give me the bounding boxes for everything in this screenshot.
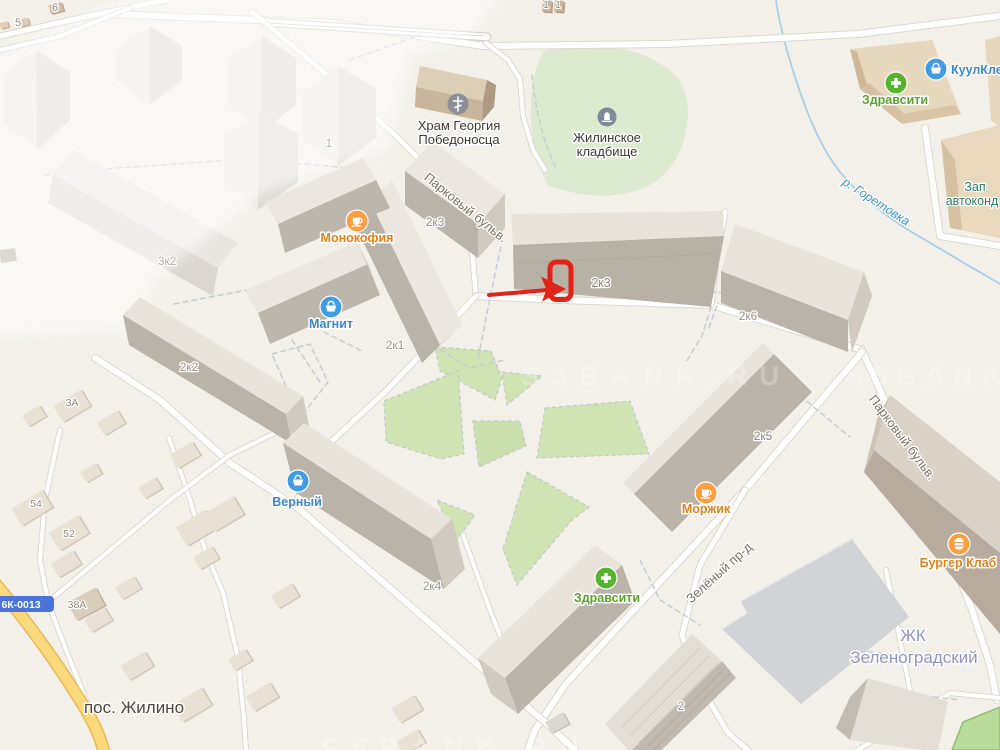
svg-text:КуулКлев: КуулКлев: [951, 63, 1000, 77]
svg-text:2: 2: [678, 699, 685, 713]
svg-text:Победоносца: Победоносца: [418, 132, 500, 147]
svg-text:6К-0013: 6К-0013: [1, 599, 40, 611]
svg-text:Верный: Верный: [272, 495, 322, 509]
svg-text:5: 5: [15, 17, 21, 29]
svg-text:38А: 38А: [68, 599, 87, 611]
svg-text:2к2: 2к2: [180, 360, 199, 374]
svg-text:Магнит: Магнит: [309, 317, 353, 331]
svg-text:54: 54: [30, 498, 42, 510]
svg-text:Бургер Клаб: Бургер Клаб: [920, 556, 997, 570]
svg-text:Жилинское: Жилинское: [573, 130, 641, 145]
svg-text:2к1: 2к1: [386, 338, 405, 352]
svg-text:S5BANK.RU: S5BANK.RU: [521, 361, 779, 391]
svg-text:Зап: Зап: [964, 180, 985, 194]
svg-text:52: 52: [63, 528, 75, 540]
svg-text:Здравсити: Здравсити: [862, 93, 928, 107]
svg-text:кладбище: кладбище: [577, 144, 638, 159]
svg-text:1: 1: [543, 0, 549, 11]
svg-text:2к4: 2к4: [423, 579, 442, 593]
svg-text:S5BANK.RU: S5BANK.RU: [321, 733, 579, 750]
svg-text:2к3: 2к3: [591, 276, 610, 290]
svg-text:6: 6: [52, 2, 58, 14]
svg-text:3А: 3А: [66, 397, 79, 409]
svg-text:1: 1: [555, 0, 561, 11]
svg-text:Моржик: Моржик: [682, 502, 731, 516]
svg-text:1: 1: [326, 136, 333, 150]
svg-text:Зеленоградский: Зеленоградский: [850, 648, 977, 667]
svg-text:ЖК: ЖК: [900, 626, 926, 645]
svg-text:2к5: 2к5: [754, 429, 773, 443]
svg-text:автоконд: автоконд: [946, 194, 999, 208]
svg-text:Здравсити: Здравсити: [574, 591, 640, 605]
svg-text:пос. Жилино: пос. Жилино: [84, 698, 184, 717]
svg-text:Монокофия: Монокофия: [321, 231, 394, 245]
svg-text:2к3: 2к3: [426, 215, 445, 229]
svg-text:3к2: 3к2: [158, 254, 177, 268]
svg-text:2к6: 2к6: [739, 309, 758, 323]
svg-text:Храм Георгия: Храм Георгия: [418, 118, 501, 133]
